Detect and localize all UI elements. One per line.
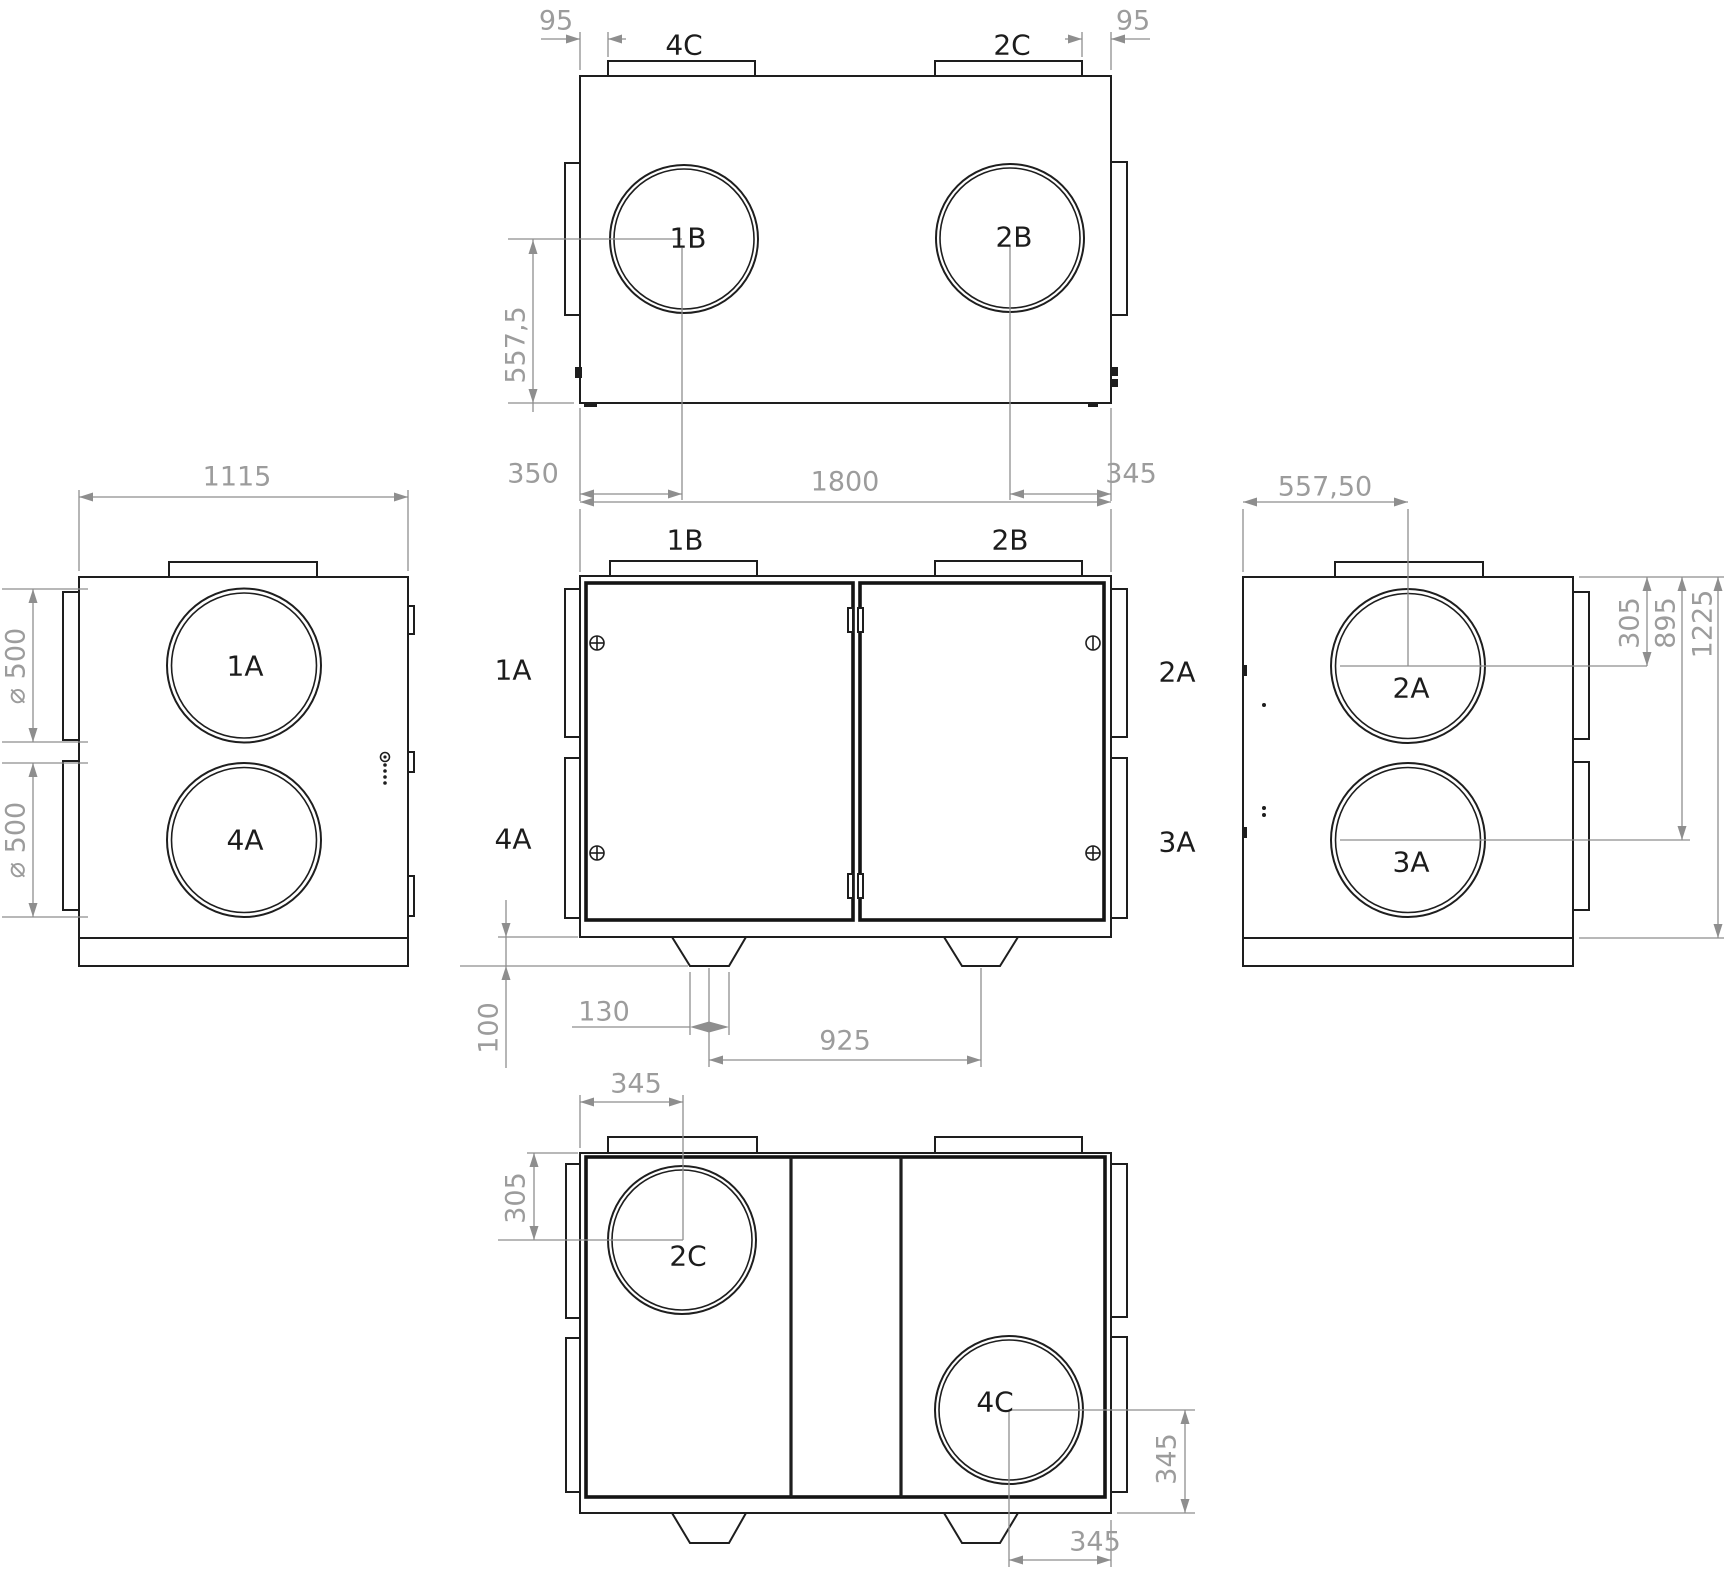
side-label-1a: 1A [495,654,532,687]
side-label-2a: 2A [1159,656,1196,689]
dim-130: 130 [578,997,630,1028]
dim-1800: 1800 [811,467,880,498]
front-port-label-2b: 2B [991,524,1028,557]
top-view-right-flange [1111,162,1127,315]
dim-895: 895 [1651,597,1682,649]
led-dot-icon [383,781,387,785]
right-view-flange-lower [1573,762,1589,910]
dim-95-right: 95 [1116,6,1150,37]
bottom-view-right-flange-upper [1111,1164,1127,1317]
top-view-right-edge-detail-1 [1111,367,1118,376]
front-view: 1800 100 130 925 1B 2B 1A 4A 2A 3A [460,467,1195,1069]
front-view-port-1b-stub [610,561,757,577]
dim-350: 350 [507,459,559,490]
dim-100: 100 [474,1002,505,1054]
front-view-left-flange-upper [565,589,581,737]
left-view-body [79,577,408,938]
bottom-view-top-stub-right [935,1137,1082,1154]
door-screw-icon [590,636,604,650]
bottom-view-foot-right [944,1513,1018,1543]
port-label-4c: 4C [976,1386,1013,1419]
top-view: 95 95 557,5 350 345 4C 2C 1B 2B [501,6,1157,502]
front-view-right-flange-upper [1111,589,1127,737]
left-view-edge-tab-1 [408,606,414,634]
side-label-3a: 3A [1159,826,1196,859]
bottom-view-right-flange-lower [1111,1337,1127,1492]
port-label-2c: 2C [993,29,1030,62]
dim-1225: 1225 [1688,590,1719,659]
front-view-port-2b-stub [935,561,1082,577]
dim-345-bottom-view-bottom: 345 [1069,1527,1121,1558]
top-view-bottom-detail-1 [584,403,597,407]
port-label-1a: 1A [227,650,264,683]
led-dot-icon [383,769,387,773]
front-view-right-flange-lower [1111,758,1127,918]
front-view-door-right [860,583,1104,920]
right-view-base [1243,938,1573,966]
left-view-flange-lower [63,761,80,910]
dim-925: 925 [819,1026,871,1057]
top-view-port-4c-stub [608,61,755,77]
right-view-top-stub [1335,562,1483,578]
right-view-edge-detail-2 [1243,827,1247,838]
right-view-edge-detail-1 [1243,665,1247,676]
left-view-base [79,938,408,966]
left-side-view: 1115 ⌀ 500 ⌀ 500 1A 4A [1,462,415,967]
port-label-2c: 2C [669,1240,706,1273]
led-dot-icon [383,763,387,767]
front-view-door-left [586,583,853,920]
port-label-2a: 2A [1393,672,1430,705]
bottom-view-left-flange-lower [566,1338,581,1492]
hinge-icon [848,874,853,898]
panel-dot-icon [1262,813,1266,817]
dim-557-50: 557,50 [1278,472,1372,503]
top-view-port-2c-stub [935,61,1082,77]
front-view-foot-left [672,937,746,966]
side-label-4a: 4A [495,823,532,856]
dim-557-5: 557,5 [501,306,532,383]
port-label-1b: 1B [669,222,706,255]
left-view-edge-tab-3 [408,876,414,916]
port-label-4c: 4C [665,29,702,62]
right-side-view: 557,50 305 895 1225 2A 3A [1243,472,1724,967]
left-view-edge-tab-2 [408,752,414,772]
left-view-flange-upper [63,592,80,740]
dim-305-right-view: 305 [1615,597,1646,649]
top-view-left-edge-detail [575,367,582,378]
dim-diameter-500-top: ⌀ 500 [1,628,32,704]
top-view-bottom-detail-2 [1088,403,1098,407]
port-label-2b: 2B [995,221,1032,254]
dim-1115: 1115 [203,462,272,493]
panel-dot-icon [1262,806,1266,810]
led-dot-icon [383,775,387,779]
dim-345-bottom-view-top: 345 [610,1069,662,1100]
technical-drawing-page: 95 95 557,5 350 345 4C 2C 1B 2B [0,0,1725,1579]
front-port-label-1b: 1B [666,524,703,557]
port-label-4a: 4A [227,824,264,857]
hinge-icon [858,608,863,632]
front-view-foot-right [944,937,1018,966]
ahu-dimension-drawing: 95 95 557,5 350 345 4C 2C 1B 2B [0,0,1725,1579]
hinge-icon [848,608,853,632]
bottom-view-foot-left [672,1513,746,1543]
top-view-right-edge-detail-2 [1111,379,1118,387]
left-view-top-stub [169,562,317,578]
bottom-view: 345 305 345 345 2C 4C [498,1069,1195,1568]
front-view-left-flange-lower [565,758,581,918]
dim-305-bottom-view: 305 [501,1172,532,1224]
dim-345-bottom-view-right: 345 [1152,1433,1183,1485]
hinge-icon [858,874,863,898]
bottom-view-inner-panel [586,1157,1105,1497]
bottom-view-left-flange-upper [566,1164,581,1318]
dim-345-top-view: 345 [1105,459,1157,490]
dim-diameter-500-bottom: ⌀ 500 [1,802,32,878]
dim-95-left: 95 [539,6,573,37]
door-screw-icon [590,846,604,860]
port-label-3a: 3A [1393,846,1430,879]
door-screw-icon [1086,846,1100,860]
panel-dot-icon [1262,703,1266,707]
